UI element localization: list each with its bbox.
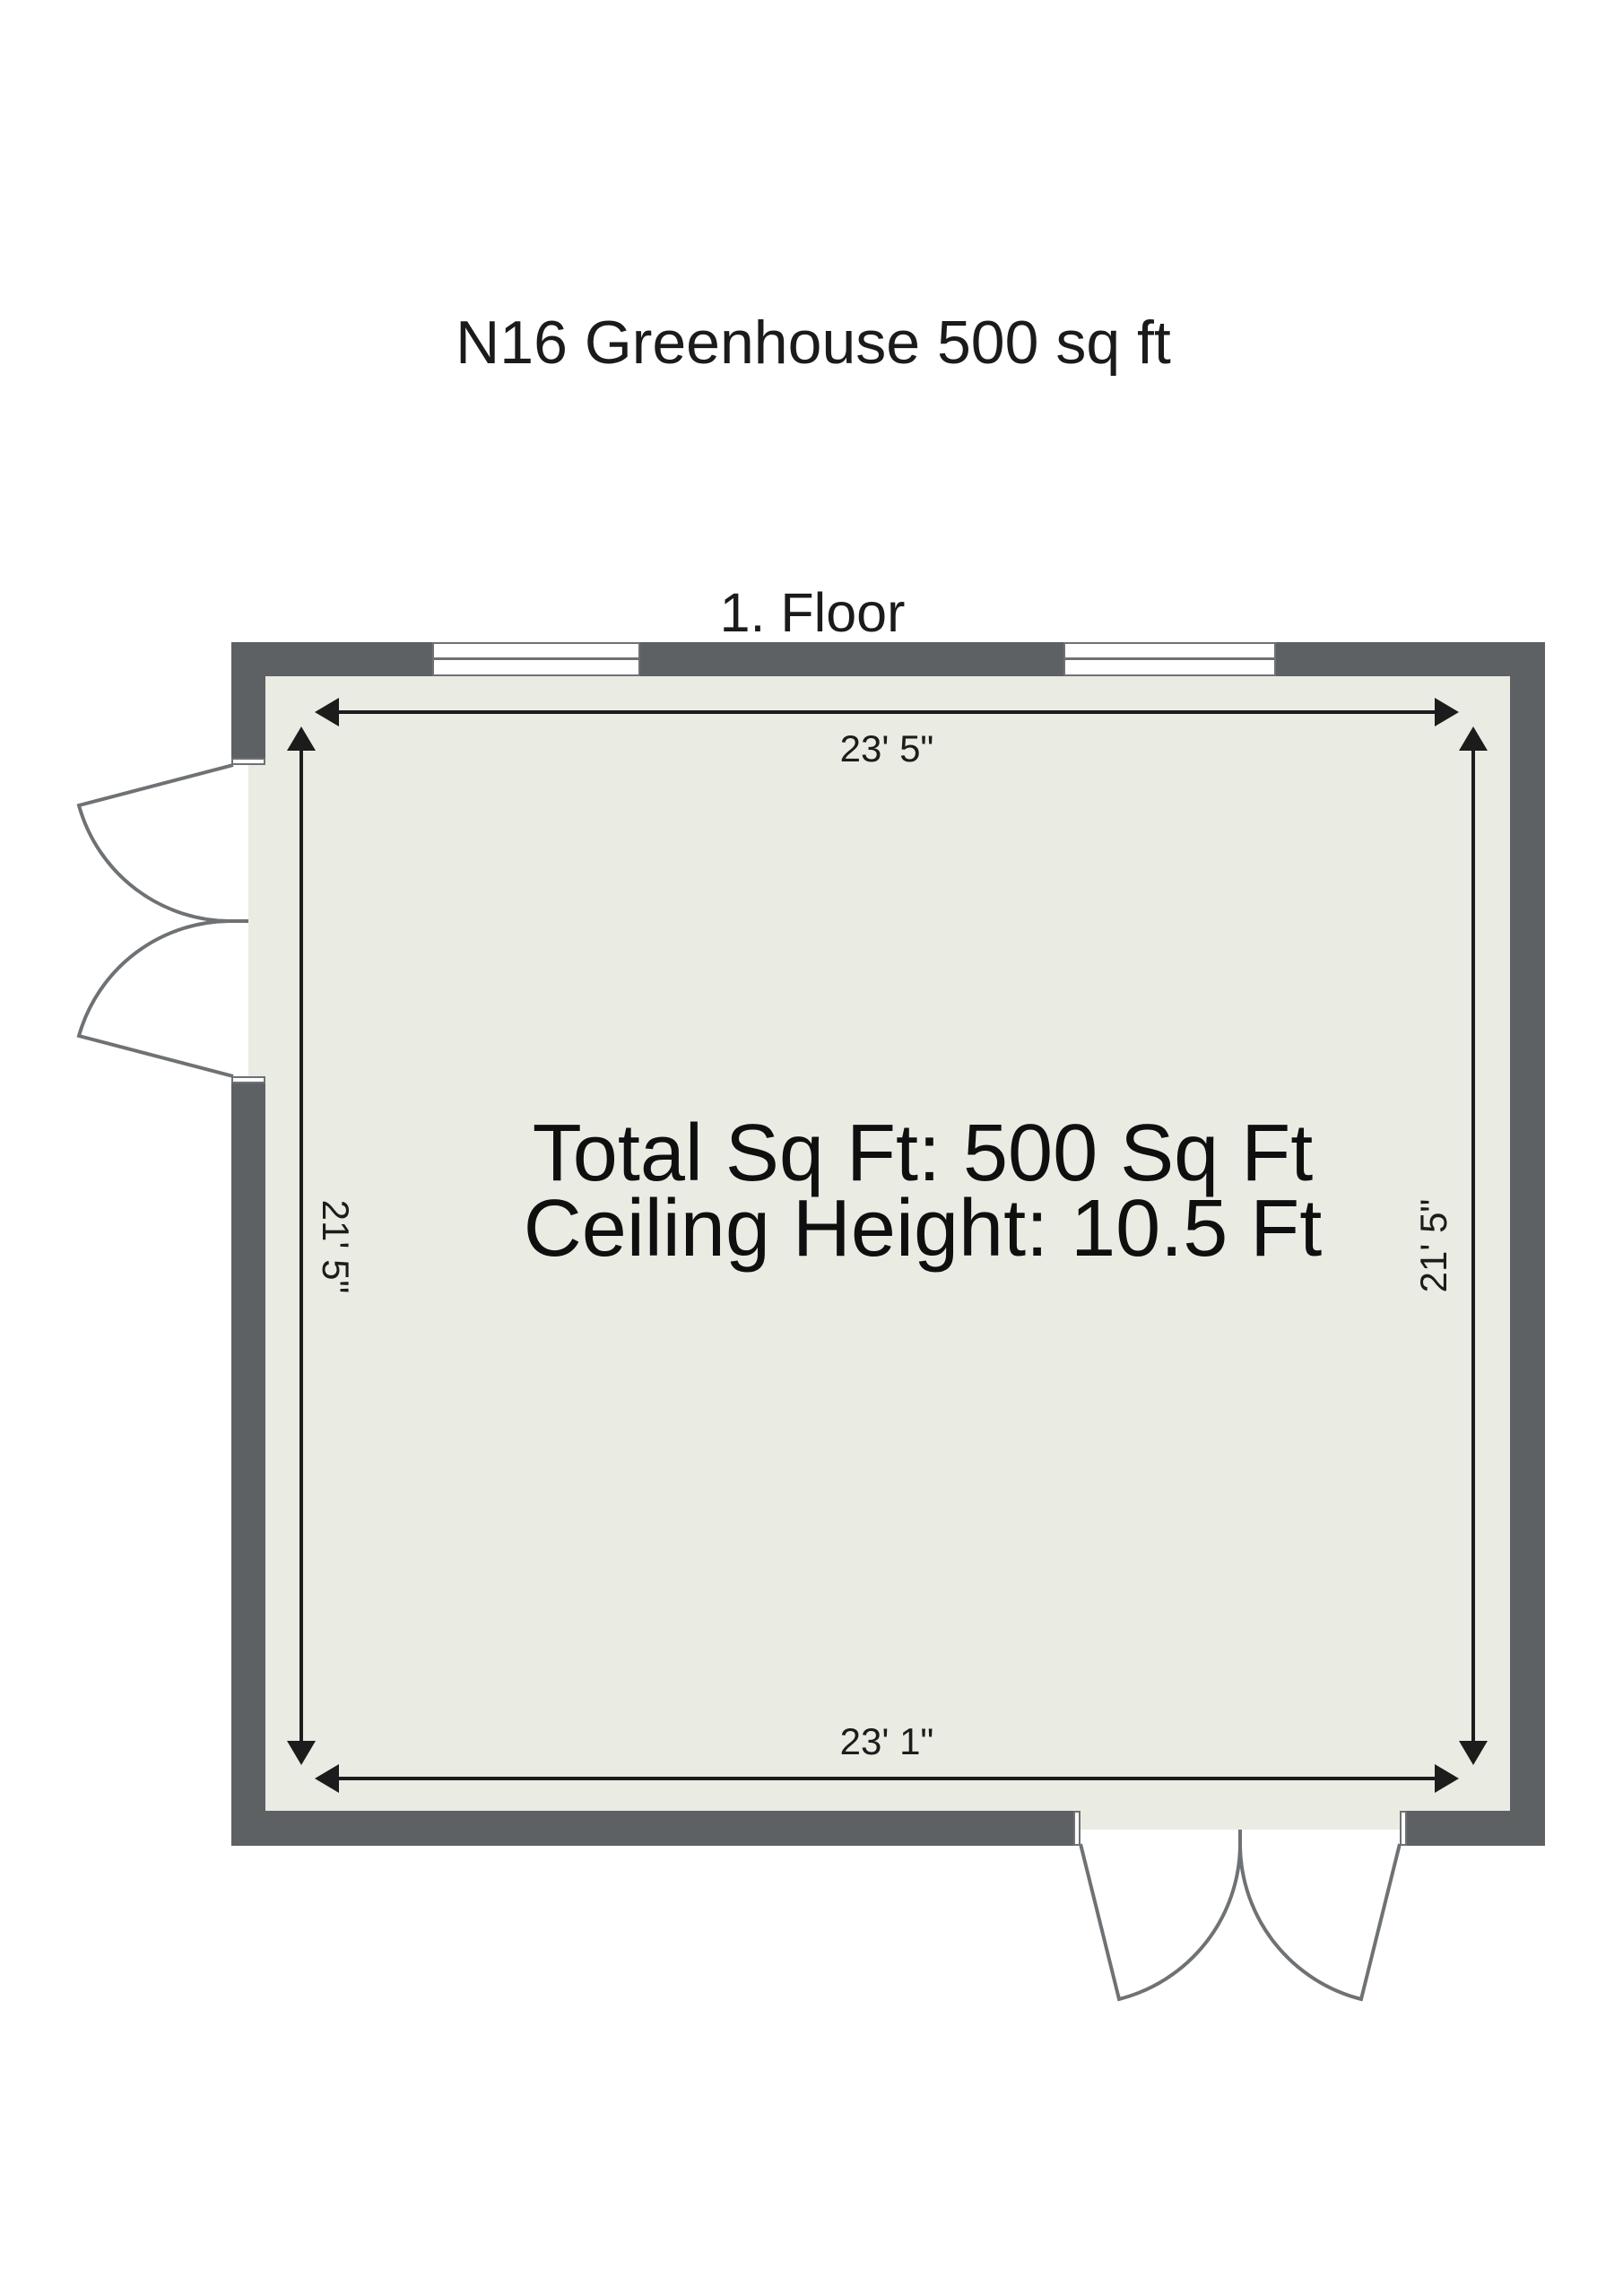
bottom-door-leaf-right bbox=[1240, 1844, 1400, 1999]
room-total-sqft-text: Total Sq Ft: 500 Sq Ft bbox=[533, 1113, 1313, 1194]
bottom-door-leaf-left bbox=[1081, 1830, 1240, 1999]
dimension-label-bottom: 23' 1" bbox=[840, 1723, 934, 1761]
arrowhead bbox=[287, 726, 316, 751]
floor-plan-page: N16 Greenhouse 500 sq ft 1. Floor bbox=[0, 0, 1623, 2296]
arrowhead bbox=[315, 1764, 339, 1793]
arrowhead bbox=[1459, 1741, 1488, 1765]
left-door-leaf-top bbox=[79, 765, 248, 921]
dimension-label-top: 23' 5" bbox=[840, 730, 934, 768]
arrowhead bbox=[1459, 726, 1488, 751]
room-ceiling-height-text: Ceiling Height: 10.5 Ft bbox=[524, 1188, 1322, 1269]
left-door-leaf-bottom bbox=[79, 921, 233, 1076]
arrowhead bbox=[1435, 1764, 1459, 1793]
arrowhead bbox=[287, 1741, 316, 1765]
dimension-label-left: 21' 5" bbox=[317, 1200, 354, 1294]
dimension-label-right: 21' 5" bbox=[1415, 1199, 1453, 1293]
arrowhead bbox=[1435, 698, 1459, 726]
arrowhead bbox=[315, 698, 339, 726]
